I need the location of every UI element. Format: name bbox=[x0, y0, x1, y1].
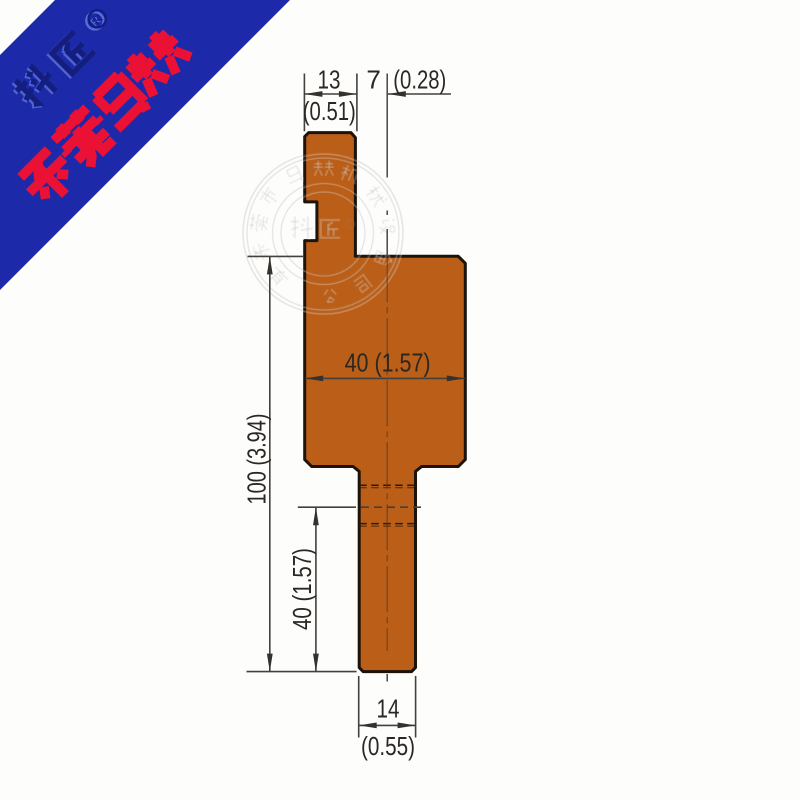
svg-text:(0.51): (0.51) bbox=[303, 96, 356, 126]
svg-text:7: 7 bbox=[366, 65, 380, 95]
svg-text:(0.28): (0.28) bbox=[393, 65, 446, 95]
svg-text:100 (3.94): 100 (3.94) bbox=[241, 414, 271, 505]
svg-text:40 (1.57): 40 (1.57) bbox=[345, 347, 431, 377]
svg-text:40 (1.57): 40 (1.57) bbox=[287, 548, 317, 630]
svg-text:(0.55): (0.55) bbox=[361, 731, 415, 761]
svg-text:13: 13 bbox=[318, 65, 341, 95]
svg-text:14: 14 bbox=[377, 694, 400, 724]
